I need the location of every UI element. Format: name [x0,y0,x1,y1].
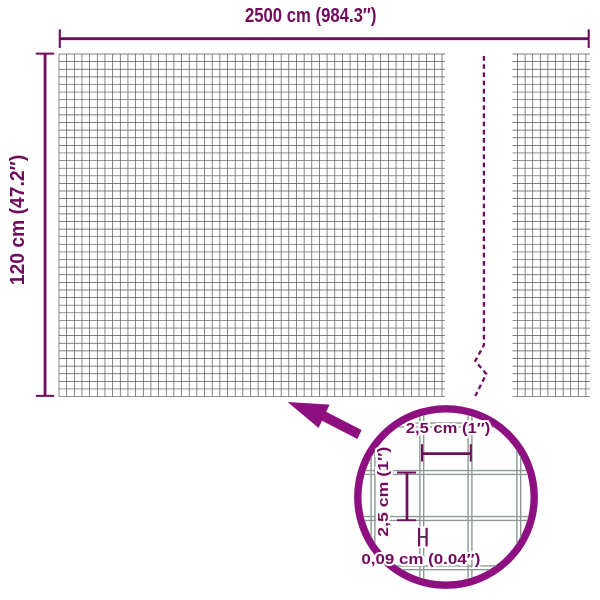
svg-text:0,09 cm (0.04″): 0,09 cm (0.04″) [361,551,480,568]
svg-text:2500 cm (984.3″): 2500 cm (984.3″) [245,5,377,27]
svg-text:2,5 cm (1″): 2,5 cm (1″) [375,447,392,537]
svg-text:120 cm (47.2″): 120 cm (47.2″) [7,155,29,286]
svg-text:2,5 cm (1″): 2,5 cm (1″) [406,420,491,437]
